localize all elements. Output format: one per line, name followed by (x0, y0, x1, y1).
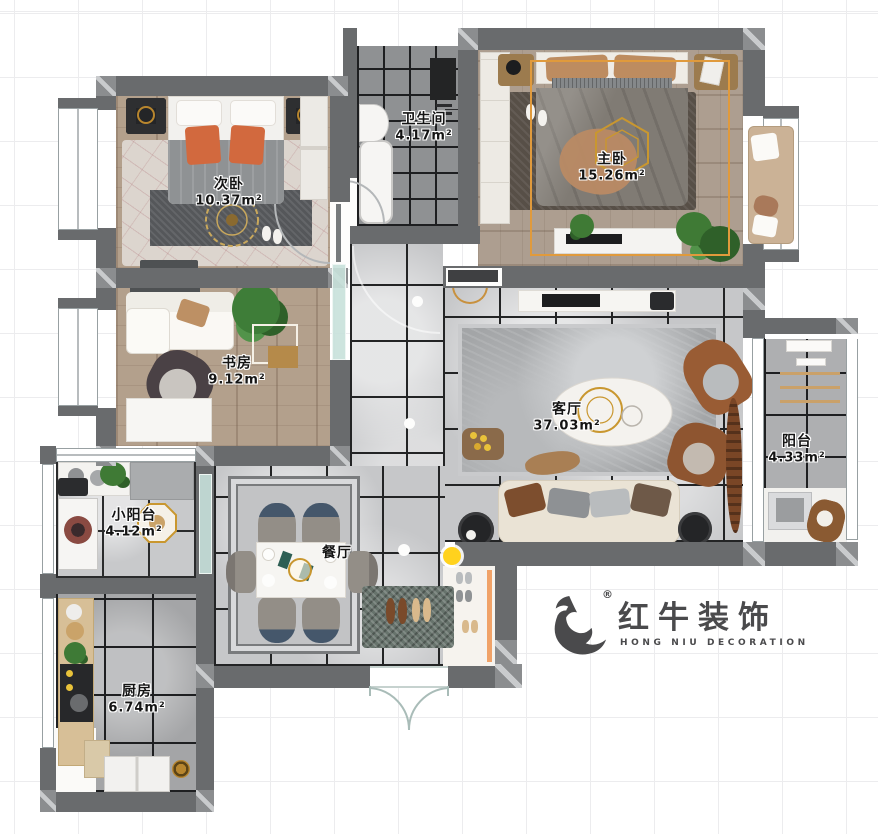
room-area: 15.26m² (578, 170, 645, 185)
window (42, 464, 54, 574)
wall-corner (495, 664, 522, 688)
wall-stub (58, 406, 98, 416)
entrance-threshold (370, 666, 448, 688)
room-area: 9.12m² (208, 374, 265, 389)
room-label-study: 书房 9.12m² (208, 355, 265, 388)
label-deco-block (268, 346, 298, 368)
wall (343, 226, 480, 244)
room-area: 4.12m² (105, 526, 162, 541)
laundry-appliance (58, 478, 88, 496)
kitchen-appliance (104, 756, 170, 792)
wall (96, 76, 348, 96)
wall (196, 446, 350, 466)
window-sill (765, 334, 858, 339)
room-label-balcony: 阳台 4.33m² (768, 433, 825, 466)
room-label-master-bedroom: 主卧 15.26m² (578, 151, 645, 184)
wall-stub (58, 98, 98, 108)
wall-corner (836, 542, 858, 566)
desk (126, 398, 212, 442)
orange-cushion (229, 125, 266, 165)
wall (50, 792, 214, 812)
sofa-chaise (126, 308, 170, 354)
wall-corner (196, 790, 214, 812)
room-name: 阳台 (782, 433, 812, 449)
pillow (230, 100, 276, 126)
wall-corner (196, 446, 214, 466)
shoes (462, 620, 469, 633)
room-label-second-bedroom: 次卧 10.37m² (195, 176, 262, 209)
room-area: 10.37m² (195, 195, 262, 210)
balcony-shelf (796, 358, 826, 366)
room-name: 卫生间 (401, 111, 446, 127)
dried-branches (726, 398, 742, 533)
entry-bench-strip (487, 570, 492, 662)
wall-corner (743, 28, 765, 50)
kitchen-window (42, 598, 54, 748)
room-name: 餐厅 (322, 545, 352, 561)
slippers (262, 226, 271, 241)
shoes-brown (386, 598, 395, 624)
logo-text-en: HONG NIU DECORATION (620, 638, 809, 648)
flowers (470, 432, 477, 439)
room-label-dining-room: 餐厅 (322, 545, 352, 561)
speaker-ring (137, 106, 155, 124)
wall-corner (40, 790, 56, 812)
wall (40, 574, 56, 598)
room-name: 客厅 (552, 401, 582, 417)
room-label-kitchen: 厨房 6.74m² (108, 683, 165, 716)
shoes-tan (412, 598, 420, 622)
bowl (66, 622, 84, 640)
door-leaf (336, 204, 341, 262)
wall (458, 28, 478, 226)
room-area: 6.74m² (108, 702, 165, 717)
lamp (506, 60, 521, 75)
plates (262, 548, 275, 561)
wall-corner (96, 76, 116, 96)
wall-corner (743, 542, 765, 566)
floor-petal (412, 296, 423, 307)
doormat (362, 586, 454, 648)
dish (66, 604, 82, 620)
highlight-dot (443, 547, 461, 565)
wall (50, 578, 196, 594)
round-side-table (678, 512, 712, 546)
drying-rack (780, 372, 840, 375)
bay-window (58, 108, 98, 230)
shoes (456, 590, 463, 602)
chaise-pillow (750, 132, 779, 161)
floor-plan: 次卧 10.37m² 卫生间 4.17m² 主卧 15.26m² 书房 9.12… (0, 0, 878, 834)
small-balcony-window (56, 448, 196, 462)
room-name: 主卧 (597, 151, 627, 167)
wall-corner (743, 288, 765, 310)
wall (196, 666, 372, 688)
registered-mark: ® (602, 588, 613, 601)
centerpiece (288, 558, 312, 582)
room-label-bathroom: 卫生间 4.17m² (395, 111, 452, 144)
mat (130, 462, 194, 500)
pendant-lamp (172, 760, 190, 778)
floor-petal (404, 418, 415, 429)
plant (64, 642, 86, 664)
wall-corner (328, 76, 348, 96)
side-table (462, 428, 504, 460)
bathroom-vanity (430, 58, 456, 100)
wall-corner (458, 28, 478, 50)
glass-door-study (332, 264, 346, 360)
bay-window (58, 308, 98, 406)
washer-drum (64, 516, 92, 544)
balcony-window (846, 336, 858, 540)
wall-corner (196, 664, 214, 688)
wall (458, 28, 765, 50)
wall-stub (763, 250, 799, 262)
room-label-living-room: 客厅 37.03m² (533, 401, 600, 434)
cooktop-knobs (66, 670, 73, 677)
dining-chair (258, 597, 296, 643)
sink (70, 694, 88, 712)
toilet (359, 104, 389, 142)
wall-stub (58, 230, 98, 240)
dining-chair (226, 551, 256, 593)
sink-basin (776, 498, 804, 522)
towel-rack (436, 104, 452, 107)
orange-cushion (185, 125, 222, 165)
glass-door-laundry (199, 474, 212, 574)
chaise-pillow (751, 214, 778, 238)
brand-logo: ® 红牛装饰 HONG NIU DECORATION (546, 592, 809, 658)
room-name: 次卧 (214, 176, 244, 192)
wall-stub (763, 106, 799, 118)
shoes (456, 572, 463, 584)
wall-corner (96, 268, 116, 288)
wall-corner (495, 640, 517, 666)
bull-logo-icon (546, 592, 608, 658)
room-area: 4.17m² (395, 130, 452, 145)
wardrobe (300, 96, 328, 200)
room-name: 厨房 (122, 683, 152, 699)
room-name: 书房 (222, 355, 252, 371)
wall-corner (836, 318, 858, 334)
tv (542, 294, 600, 307)
wall-corner (330, 446, 350, 466)
room-area: 4.33m² (768, 452, 825, 467)
room-name: 小阳台 (111, 507, 156, 523)
dining-chair (302, 597, 340, 643)
speaker (650, 292, 674, 310)
wall-stub (58, 298, 98, 308)
room-label-small-balcony: 小阳台 4.12m² (105, 507, 162, 540)
wall (40, 446, 56, 464)
entrance-double-door (364, 686, 454, 736)
table-dish (466, 530, 476, 540)
wall (455, 542, 858, 566)
logo-text-cn: 红牛装饰 (618, 603, 809, 634)
pillow (176, 100, 222, 126)
wall (116, 268, 348, 288)
sofa-pillow-light (589, 488, 631, 518)
wall (343, 28, 357, 178)
cooktop (60, 664, 93, 722)
sliding-glass-door (752, 338, 764, 542)
floor-petal (398, 544, 410, 556)
room-area: 37.03m² (533, 420, 600, 435)
door-leaf (448, 270, 498, 282)
balcony-shelf (786, 340, 832, 352)
